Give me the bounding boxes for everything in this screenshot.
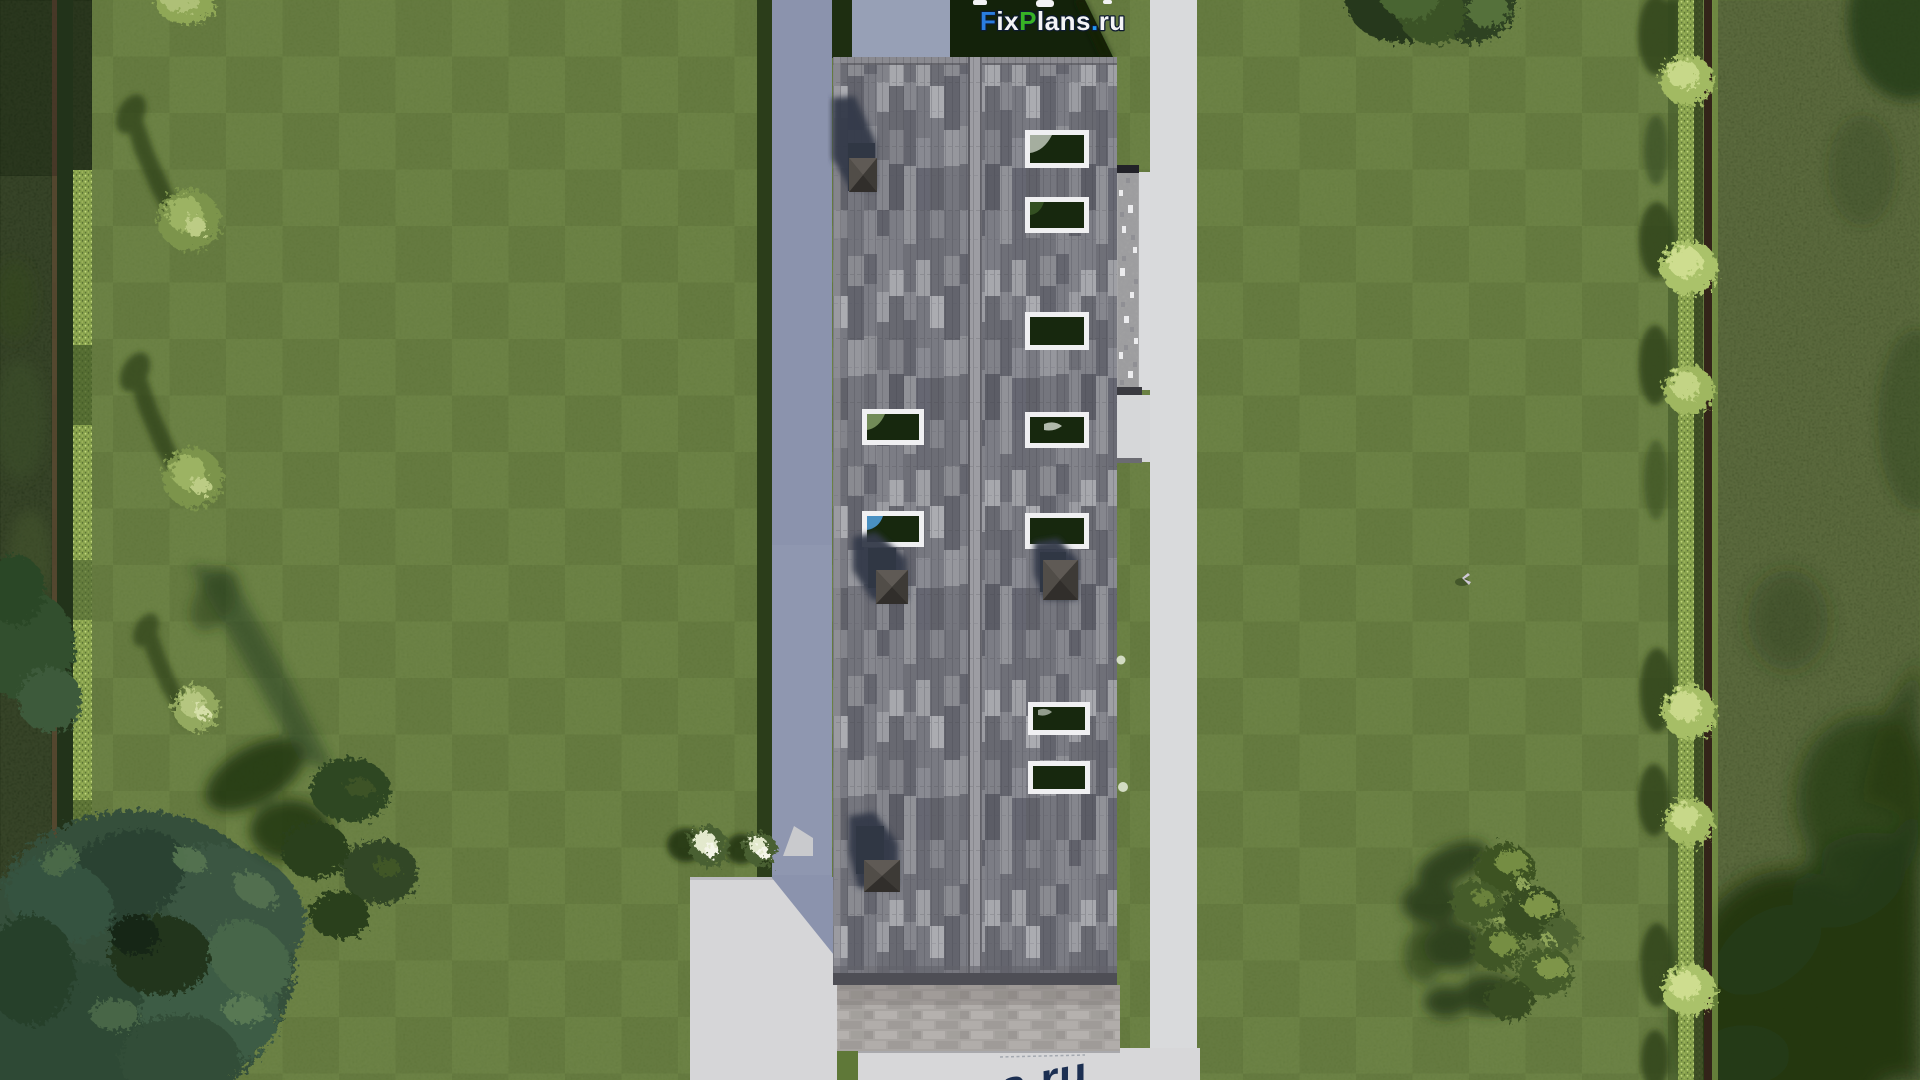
svg-text:FixPlans.ru: FixPlans.ru [980, 6, 1126, 36]
